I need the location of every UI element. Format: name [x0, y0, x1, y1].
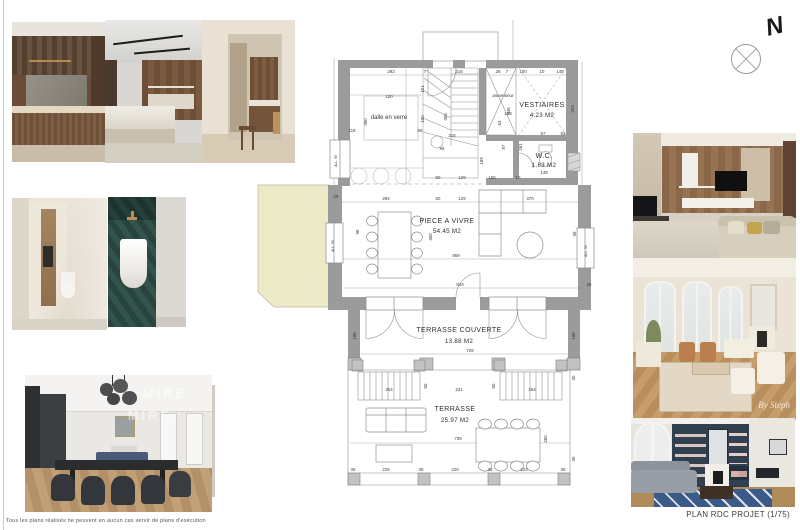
- photo-kitchen-2: [105, 20, 202, 163]
- fluted-island: [12, 113, 105, 145]
- dimension-label: 7: [506, 69, 509, 74]
- white-cabinet: [682, 153, 698, 186]
- window-2: [186, 413, 203, 464]
- dimension-label: 149: [556, 69, 564, 74]
- dimension-label: 188: [571, 332, 576, 340]
- watermark: MIRE: [143, 386, 188, 401]
- dimension-label: 254: [385, 387, 393, 392]
- dimension-label: 224: [520, 467, 528, 472]
- corridor: [230, 43, 247, 132]
- dimension-label: 101: [420, 85, 425, 93]
- dimension-label: 50: [423, 383, 428, 388]
- dimension-label: 35: [351, 467, 356, 472]
- dimension-label: 26: [587, 282, 592, 287]
- overmantel-mirror: [750, 284, 777, 330]
- dimension-label: 87: [501, 144, 506, 149]
- dimension-label: 30: [571, 456, 576, 461]
- ceiling: [12, 22, 105, 36]
- dimension-label: 130: [420, 115, 425, 123]
- armchair: [731, 368, 755, 394]
- dimension-label: 261: [518, 143, 523, 151]
- dimension-label: 35: [561, 467, 566, 472]
- plan-annotation: ALL. 95: [584, 245, 588, 257]
- dimension-label: 50: [436, 196, 441, 201]
- gold-pillow: [747, 222, 762, 235]
- round-table-plan: [517, 232, 543, 258]
- dimension-label: 50: [491, 383, 496, 388]
- photo-living-tv: [633, 133, 796, 258]
- signature-watermark: By Steph: [758, 400, 790, 410]
- dimension-label: 220: [451, 467, 459, 472]
- leather-chair: [700, 342, 716, 361]
- dimension-label: 189: [479, 157, 484, 165]
- tap-stem: [131, 211, 133, 219]
- dimension-label: 149: [540, 170, 548, 175]
- chair: [141, 475, 165, 504]
- white-wall: [749, 418, 795, 496]
- coffee-table: [692, 362, 730, 375]
- plan-title: PLAN RDC PROJET (1/75): [560, 510, 790, 519]
- dimension-label: 129: [458, 196, 466, 201]
- chair: [111, 476, 135, 505]
- dimension-label: 28: [496, 69, 501, 74]
- dimension-label: 30: [571, 375, 576, 380]
- crown-moulding: [633, 258, 796, 277]
- photo-kitchen-1: [12, 22, 105, 162]
- plan-annotation: ascenseur: [492, 93, 514, 98]
- dimension-label: 35: [488, 467, 493, 472]
- dimension-label: 231: [455, 387, 463, 392]
- dimension-label: 204: [570, 105, 575, 113]
- dimension-label: 225: [382, 467, 390, 472]
- room-area-label: 4.23 M2: [530, 112, 555, 119]
- dimension-label: 400: [428, 233, 433, 241]
- photo-library-salon: [631, 418, 795, 507]
- watermark: MIRE: [128, 408, 173, 423]
- plan-annotation: ALL. 95: [334, 155, 338, 167]
- island-side: [105, 129, 175, 143]
- presentation-board: MIRE MIRE: [0, 0, 800, 530]
- duct-hatch: [568, 153, 580, 171]
- pendant-light: [29, 60, 71, 62]
- room-label: TERRASSE COUVERTE: [416, 327, 501, 334]
- dimension-label: 370: [526, 196, 534, 201]
- dimension-label: 100: [519, 69, 527, 74]
- grey-sofa: [631, 470, 697, 493]
- dimension-label: 35: [419, 467, 424, 472]
- floor-plan: VESTIAIRES4.23 M2W.C.1.63 M2PIECE A VIVR…: [246, 18, 602, 504]
- marble-island: [105, 106, 175, 129]
- photo-wc: [12, 198, 107, 330]
- dining-table: [55, 460, 178, 470]
- dimension-label: 869: [452, 253, 460, 258]
- room-area-label: 54.45 M2: [433, 228, 461, 235]
- room-area-label: 13.88 M2: [445, 338, 473, 345]
- dimension-label: 120: [385, 94, 393, 99]
- armchair: [757, 352, 785, 384]
- floor: [12, 319, 107, 330]
- dimension-label: 260: [543, 435, 548, 443]
- pillow: [728, 221, 744, 235]
- dining-table-plan: [367, 212, 423, 278]
- dimension-label: 10: [540, 69, 545, 74]
- dimension-label: 67: [541, 131, 546, 136]
- floor: [105, 143, 202, 163]
- dimension-label: 25: [334, 194, 339, 199]
- dimension-label: 118: [349, 128, 357, 133]
- photo-haussmann-salon: By Steph: [633, 258, 796, 420]
- plan-annotation: ALL. 95: [331, 240, 335, 252]
- photo-dining: MIRE MIRE: [25, 375, 212, 512]
- dimension-label: 360: [363, 118, 368, 126]
- dimension-label: 254: [528, 387, 536, 392]
- dimension-label: 294: [382, 196, 390, 201]
- room-label: W.C.: [536, 153, 553, 160]
- room-area-label: 1.63 M2: [532, 162, 557, 169]
- dimension-label: 7: [424, 69, 427, 74]
- dimension-label: 96: [440, 146, 445, 151]
- dimension-label: 188: [352, 332, 357, 340]
- room-label: VESTIAIRES: [519, 102, 564, 109]
- niche: [43, 246, 53, 267]
- stone-backsplash: [26, 75, 87, 106]
- dimension-label: 50: [436, 175, 441, 180]
- room-label: TERRASSE: [435, 406, 476, 413]
- pink-pillow: [731, 471, 739, 477]
- dimension-label: 10: [516, 175, 521, 180]
- tv: [715, 171, 748, 191]
- wood-slats: [783, 141, 796, 219]
- north-arrow: N: [716, 6, 800, 92]
- mirror: [708, 429, 728, 467]
- room-label: PIECE A VIVRE: [420, 218, 475, 225]
- island-counter: [12, 106, 105, 113]
- floor: [156, 317, 186, 327]
- north-label: N: [763, 11, 787, 42]
- dimension-label: 63: [497, 120, 502, 125]
- page-left-border: [3, 0, 4, 530]
- white-sofa: [724, 339, 753, 358]
- room-area-label: 25.97 M2: [441, 417, 469, 424]
- chair: [81, 476, 105, 505]
- book-shelves-2: [729, 427, 747, 464]
- dimension-label: 728: [466, 348, 474, 353]
- dimension-label: 92: [561, 131, 566, 136]
- shelf: [148, 86, 195, 88]
- dimension-label: 739: [454, 436, 462, 441]
- fireplace: [633, 196, 657, 216]
- trunk-table: [700, 486, 733, 499]
- curved-wall: [67, 198, 107, 330]
- round-basin: [120, 239, 147, 288]
- floor: [12, 145, 105, 162]
- plan-annotation: dalle en verre: [371, 115, 408, 121]
- dimension-label: 165: [488, 175, 496, 180]
- dimension-label: 56: [418, 128, 423, 133]
- chair: [51, 474, 75, 501]
- firebox: [757, 331, 767, 347]
- console: [636, 342, 660, 366]
- side-wall: [12, 198, 29, 330]
- dimension-label: 843: [456, 282, 464, 287]
- dimension-label: 292: [387, 69, 395, 74]
- dimension-label: 218: [455, 69, 463, 74]
- chair: [169, 471, 191, 497]
- pink-pillow: [739, 471, 747, 477]
- dimension-label: 305: [443, 113, 448, 121]
- pillow: [763, 221, 779, 235]
- terrace-steps: [348, 370, 580, 400]
- photo-basin: [108, 197, 186, 327]
- dimension-label: 129: [458, 175, 466, 180]
- low-board: [682, 198, 754, 208]
- dimension-label: 138: [504, 111, 512, 116]
- dimension-label: 95: [572, 231, 577, 236]
- disclaimer-text: Tous les plans réalisés ne peuvent en au…: [6, 518, 206, 524]
- dimension-label: 98: [355, 229, 360, 234]
- dimension-label: 215: [448, 133, 456, 138]
- framed-art: [769, 439, 787, 454]
- tv-console: [756, 468, 779, 478]
- firebox: [713, 471, 723, 483]
- glass-slab-area: [350, 68, 423, 185]
- leather-chair: [679, 342, 695, 361]
- existing-terrace-fill: [258, 185, 330, 307]
- chair-leg: [241, 130, 243, 150]
